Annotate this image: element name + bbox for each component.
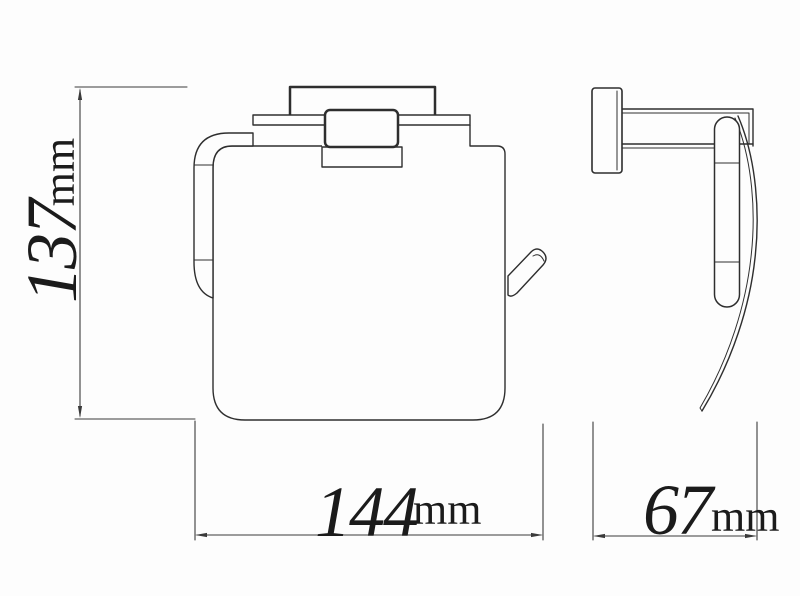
- height-arrow-down-icon: [78, 406, 82, 418]
- dimension-height: 137 mm: [12, 87, 195, 419]
- side-roll-bar: [715, 117, 740, 307]
- front-hinge-plate: [322, 147, 402, 167]
- dimension-depth: 67 mm: [593, 422, 779, 550]
- width-arrow-left-icon: [195, 533, 207, 537]
- height-value-label: 137: [12, 196, 92, 303]
- width-unit-label: mm: [413, 485, 481, 534]
- front-view: [194, 87, 546, 420]
- drawing-sheet: 137 mm 144 mm 67 mm: [0, 0, 800, 596]
- front-cover-outline: [213, 125, 505, 420]
- width-value-label: 144: [315, 472, 418, 552]
- dimension-width: 144 mm: [195, 421, 543, 552]
- height-arrow-up-icon: [78, 88, 82, 100]
- depth-arrow-left-icon: [593, 534, 605, 538]
- front-hinge-block: [325, 110, 398, 147]
- depth-value-label: 67: [643, 470, 716, 550]
- height-unit-label: mm: [35, 138, 84, 206]
- side-view: [592, 88, 757, 411]
- depth-unit-label: mm: [711, 492, 779, 541]
- technical-drawing-canvas: 137 mm 144 mm 67 mm: [0, 0, 800, 596]
- width-arrow-right-icon: [531, 533, 543, 537]
